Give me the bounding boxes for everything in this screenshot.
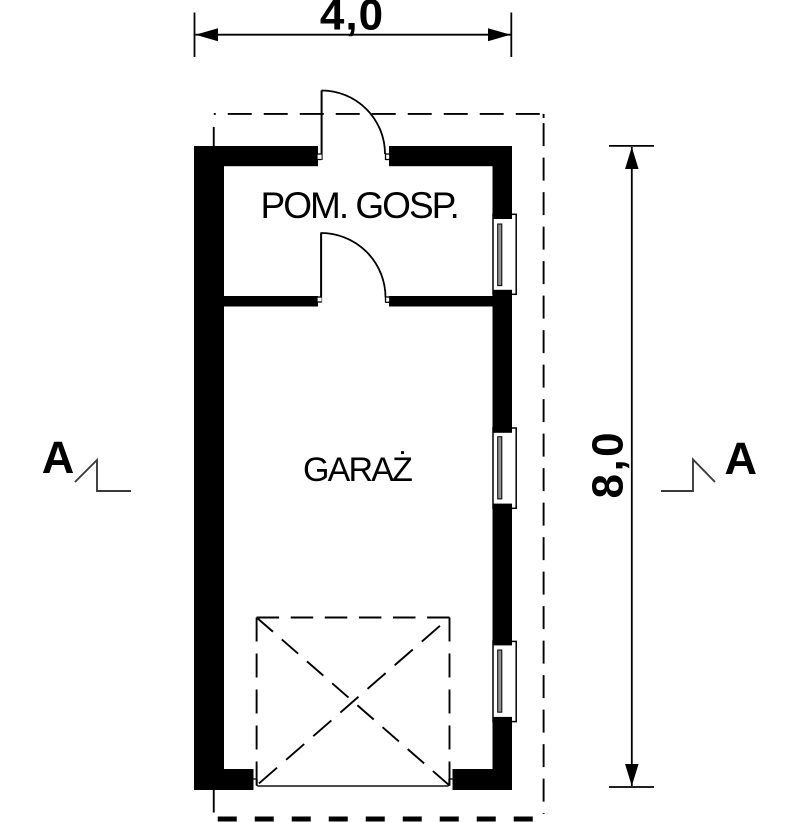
svg-text:GARAŻ: GARAŻ xyxy=(303,451,412,489)
svg-text:8,0: 8,0 xyxy=(584,430,633,499)
svg-text:4,0: 4,0 xyxy=(320,0,384,40)
svg-text:A: A xyxy=(724,433,757,484)
svg-text:A: A xyxy=(42,432,75,483)
svg-text:POM. GOSP.: POM. GOSP. xyxy=(261,185,458,226)
